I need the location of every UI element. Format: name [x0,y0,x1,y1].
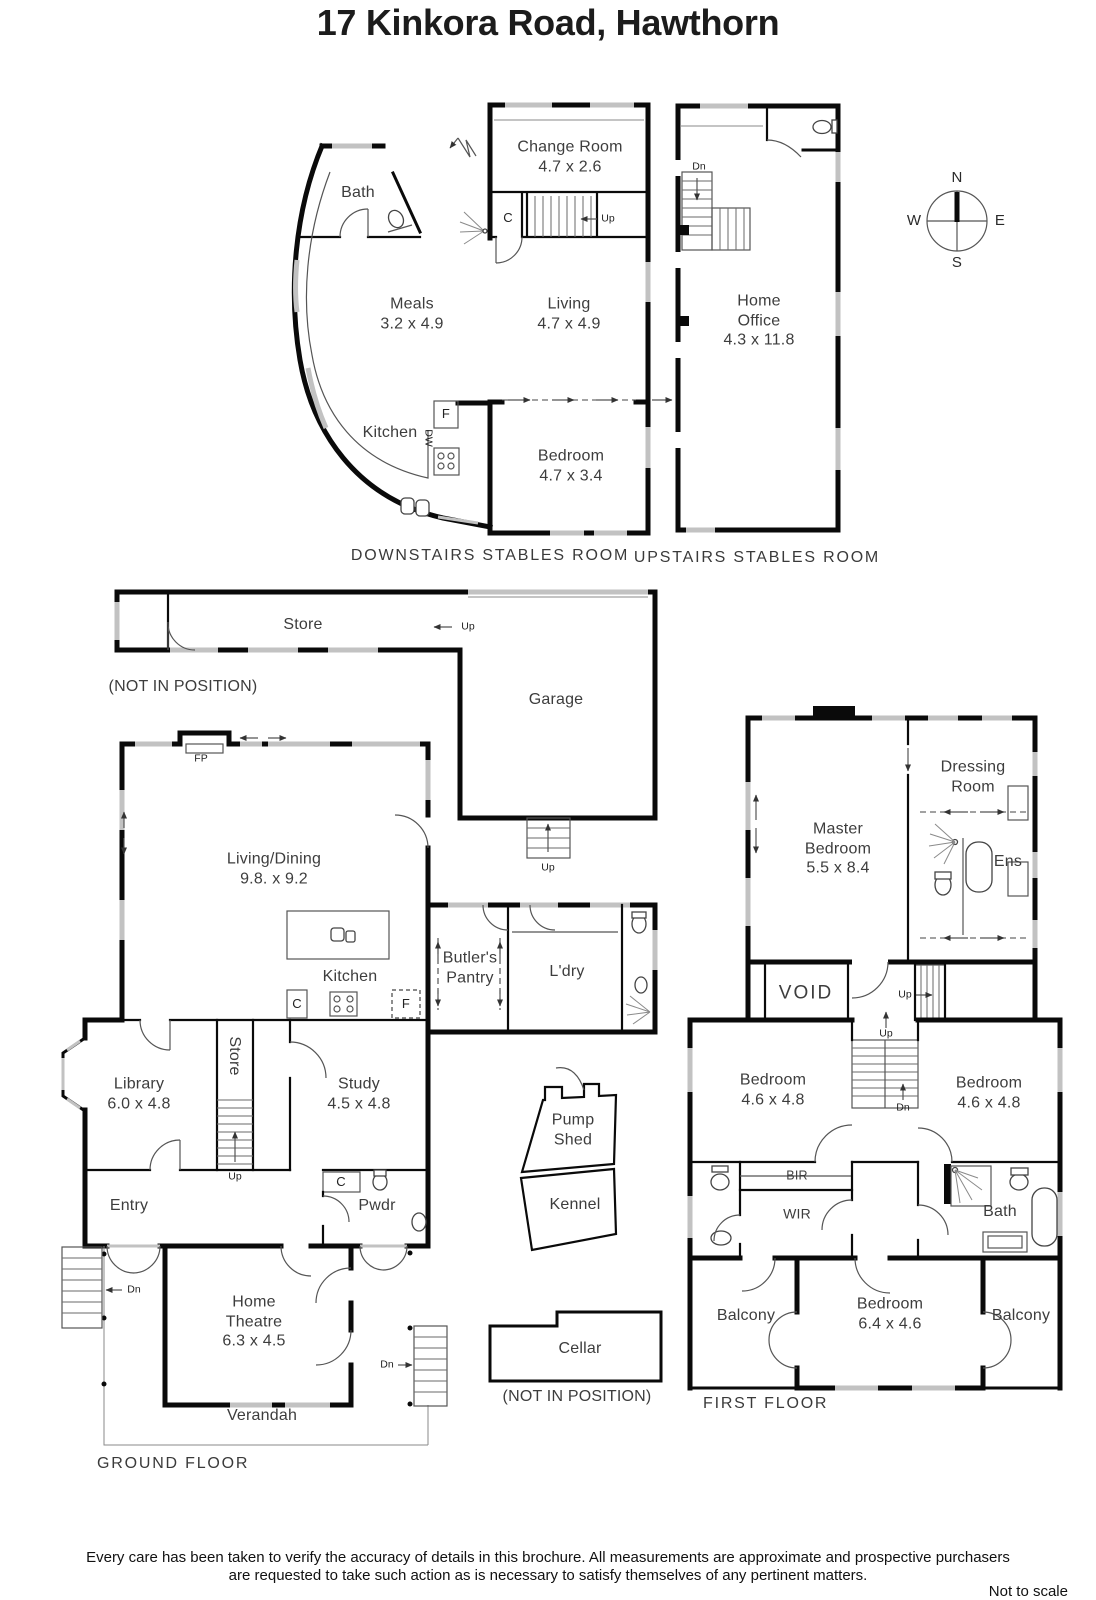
caption-ground-floor: GROUND FLOOR [97,1454,249,1474]
room-label-bedroom-right: Bedroom 4.6 x 4.8 [956,1073,1022,1112]
floorplan-page: 17 Kinkora Road, Hawthorn [0,0,1096,1600]
compass-west-label: W [907,212,921,230]
scale-note: Not to scale [0,1583,1096,1600]
room-label-bedroom-left: Bedroom 4.6 x 4.8 [740,1070,806,1109]
note-not-in-position-cellar: (NOT IN POSITION) [503,1387,652,1407]
room-label-stair-store: Store [224,1036,244,1075]
room-label-bedroom-rear: Bedroom 6.4 x 4.6 [857,1294,923,1333]
fridge-marker: F [442,406,450,422]
compass-south-label: S [952,254,962,272]
note-not-in-position-store: (NOT IN POSITION) [109,677,258,697]
floor-plan-drawing [0,0,1096,1600]
room-label-bir: BIR [786,1168,807,1183]
room-label-home-office: Home Office 4.3 x 11.8 [723,292,794,351]
down-marker-south: Dn [380,1359,393,1372]
down-marker-stables: Dn [692,161,705,174]
down-marker-main-stairs: Dn [896,1102,909,1115]
up-marker-store: Up [461,621,474,634]
room-label-kennel: Kennel [549,1195,600,1215]
room-label-store: Store [283,615,322,635]
up-marker: Up [601,213,614,226]
room-label-living: Living 4.7 x 4.9 [537,294,600,333]
disclaimer-line-1: Every care has been taken to verify the … [0,1549,1096,1566]
ground-floor-plan [62,592,661,1445]
closet-marker: C [503,210,513,226]
room-label-entry: Entry [110,1196,148,1216]
dishwasher-marker: DW [422,429,435,447]
room-label-ensuite: Ens [994,852,1022,872]
room-label-powder: Pwdr [358,1196,395,1216]
compass-rose [927,191,987,251]
room-label-pump-shed: Pump Shed [552,1110,595,1149]
room-label-garage: Garage [529,690,584,710]
down-marker-west: Dn [127,1284,140,1297]
up-marker-garage: Up [541,862,554,875]
room-label-cellar: Cellar [559,1339,602,1359]
room-label-bathroom: Bath [983,1202,1017,1222]
closet-marker-kitchen: C [292,996,302,1012]
caption-first-floor: FIRST FLOOR [703,1394,828,1414]
room-label-kitchen-stables: Kitchen [363,423,418,443]
room-label-master-bedroom: Master Bedroom 5.5 x 8.4 [805,820,871,879]
up-marker-stairs: Up [228,1171,241,1184]
room-label-butlers-pantry: Butler's Pantry [443,948,497,987]
room-label-change-room: Change Room 4.7 x 2.6 [517,137,622,176]
room-label-verandah: Verandah [227,1406,297,1426]
closet-marker-entry: C [336,1174,346,1190]
caption-downstairs-stables: DOWNSTAIRS STABLES ROOM [351,546,629,566]
room-label-library: Library 6.0 x 4.8 [107,1074,170,1113]
room-label-bedroom-stables: Bedroom 4.7 x 3.4 [538,446,604,485]
room-label-void: VOID [779,981,833,1004]
compass-north-label: N [951,169,962,187]
room-label-dressing-room: Dressing Room [941,757,1006,796]
room-label-balcony-right: Balcony [992,1306,1050,1326]
fridge-marker-kitchen: F [402,996,410,1012]
disclaimer-line-2: are requested to take such action as is … [0,1567,1096,1584]
room-label-living-dining: Living/Dining 9.8. x 9.2 [227,849,321,888]
first-floor-plan [690,706,1060,1388]
room-label-laundry: L'dry [549,962,584,982]
compass-east-label: E [995,212,1005,230]
caption-upstairs-stables: UPSTAIRS STABLES ROOM [634,548,880,568]
room-label-bath: Bath [341,183,375,203]
room-label-kitchen: Kitchen [323,967,378,987]
room-label-home-theatre: Home Theatre 6.3 x 4.5 [222,1293,285,1352]
room-label-meals: Meals 3.2 x 4.9 [380,294,443,333]
fireplace-marker: FP [194,753,207,766]
room-label-wir: WIR [783,1205,811,1222]
room-label-study: Study 4.5 x 4.8 [327,1074,390,1113]
up-marker-main-stairs: Up [879,1028,892,1041]
room-label-balcony-left: Balcony [717,1306,775,1326]
up-marker-landing: Up [898,989,911,1002]
